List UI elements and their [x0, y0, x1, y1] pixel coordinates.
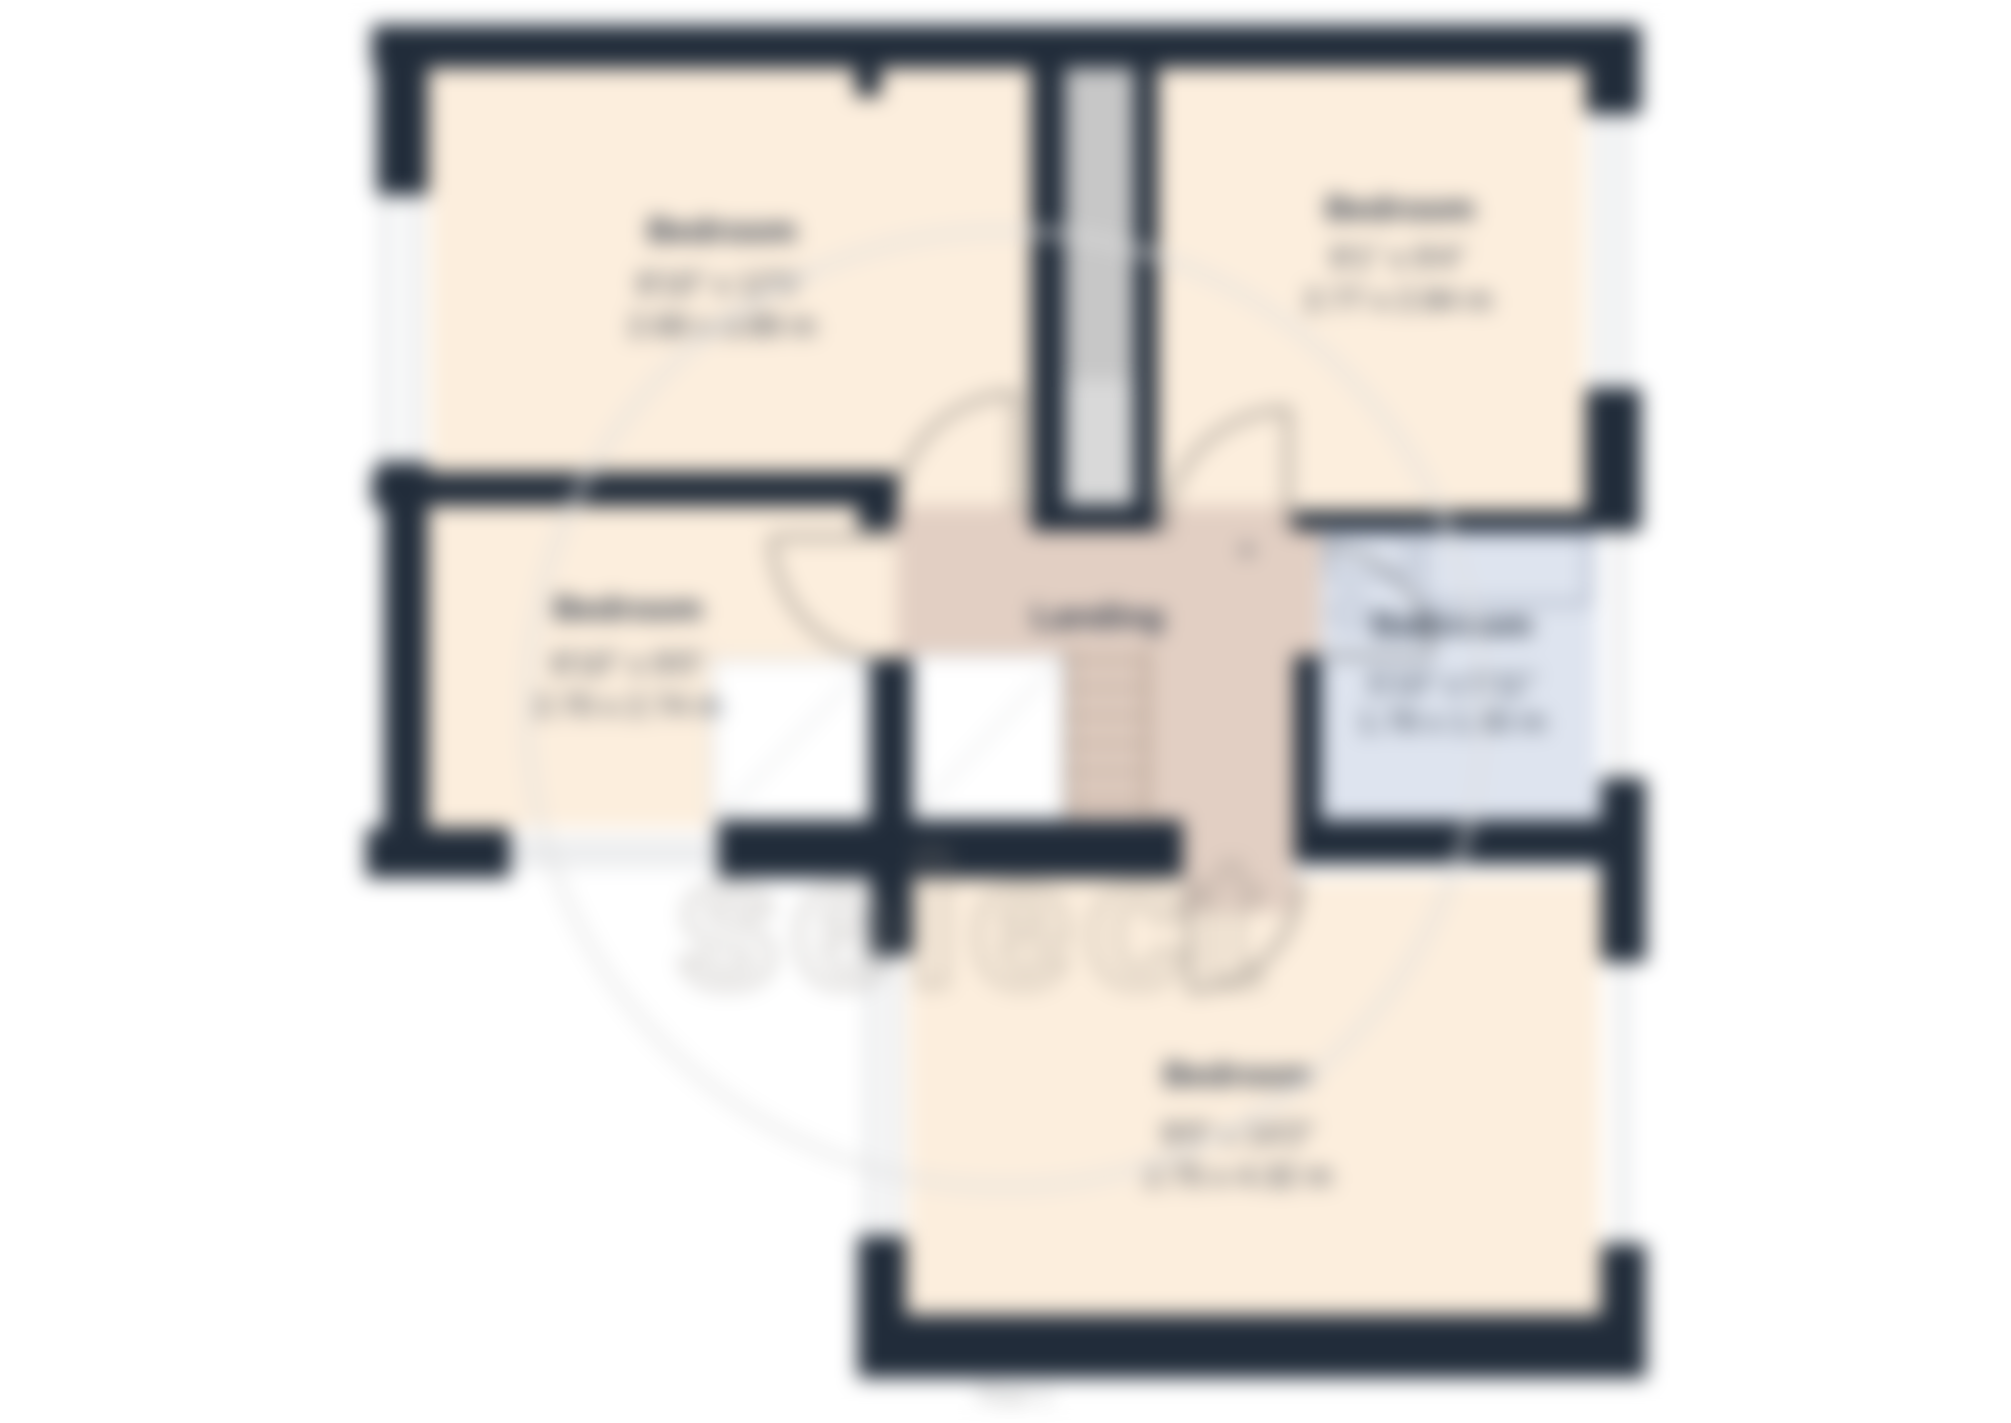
- svg-text:Bedroom: Bedroom: [1325, 190, 1474, 228]
- svg-text:select: select: [677, 819, 1274, 1025]
- svg-text:Bedroom: Bedroom: [647, 212, 796, 250]
- svg-text:Bathroom: Bathroom: [1372, 606, 1533, 644]
- svg-text:1.78 x 1.80 m: 1.78 x 1.80 m: [1358, 704, 1546, 739]
- svg-text:2.75 x 4.32 m: 2.75 x 4.32 m: [1144, 1158, 1332, 1193]
- svg-text:5'10" x 5'11": 5'10" x 5'11": [1368, 666, 1536, 701]
- svg-text:Floor 1: Floor 1: [978, 1382, 1053, 1409]
- svg-text:Bedroom: Bedroom: [553, 590, 702, 628]
- svg-text:Landing: Landing: [1032, 598, 1164, 636]
- svg-text:8'10" x 9'0": 8'10" x 9'0": [552, 646, 705, 681]
- svg-text:2.77 x 2.84 m: 2.77 x 2.84 m: [1304, 282, 1492, 317]
- svg-text:9'1" x 9'4": 9'1" x 9'4": [1330, 240, 1466, 275]
- svg-text:2.70 x 2.74 m: 2.70 x 2.74 m: [534, 688, 722, 723]
